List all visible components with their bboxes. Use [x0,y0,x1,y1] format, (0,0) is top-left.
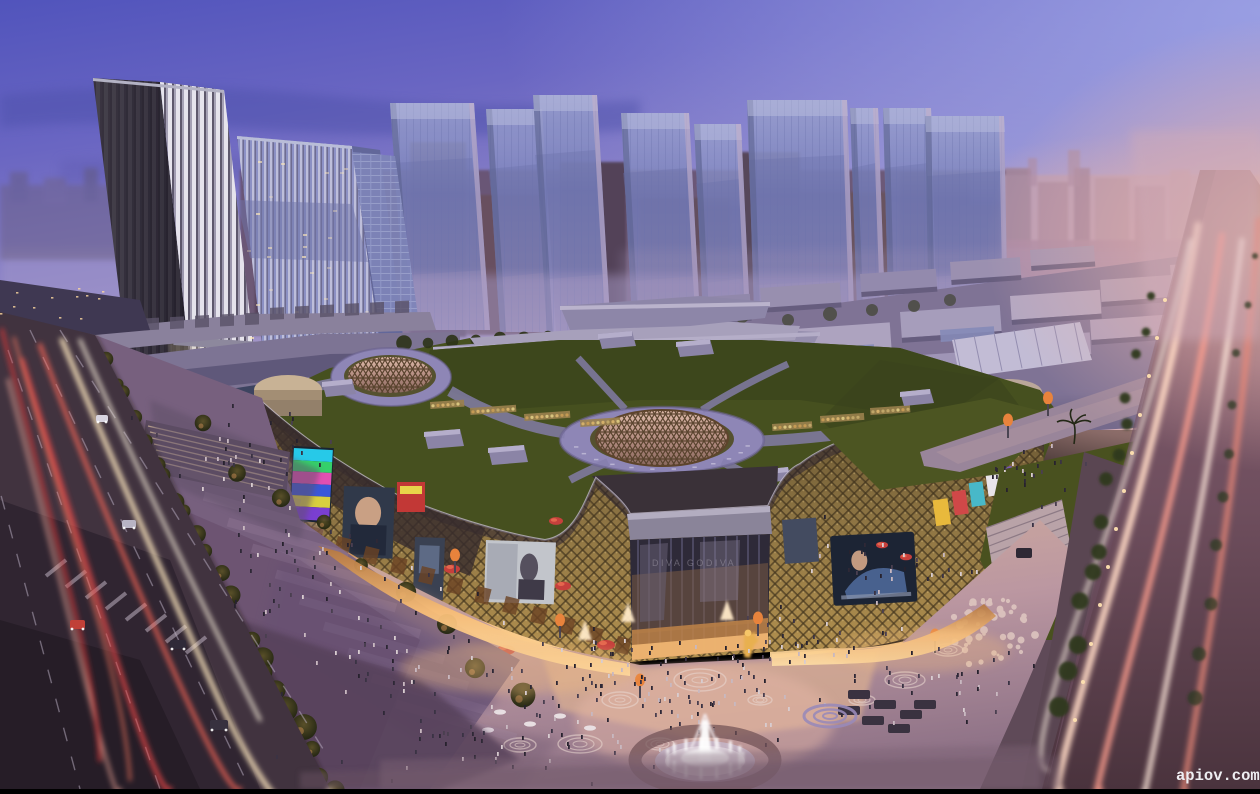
svg-text:DIVA GODIVA: DIVA GODIVA [652,558,736,568]
svg-text:apiov.com: apiov.com [1176,767,1260,785]
